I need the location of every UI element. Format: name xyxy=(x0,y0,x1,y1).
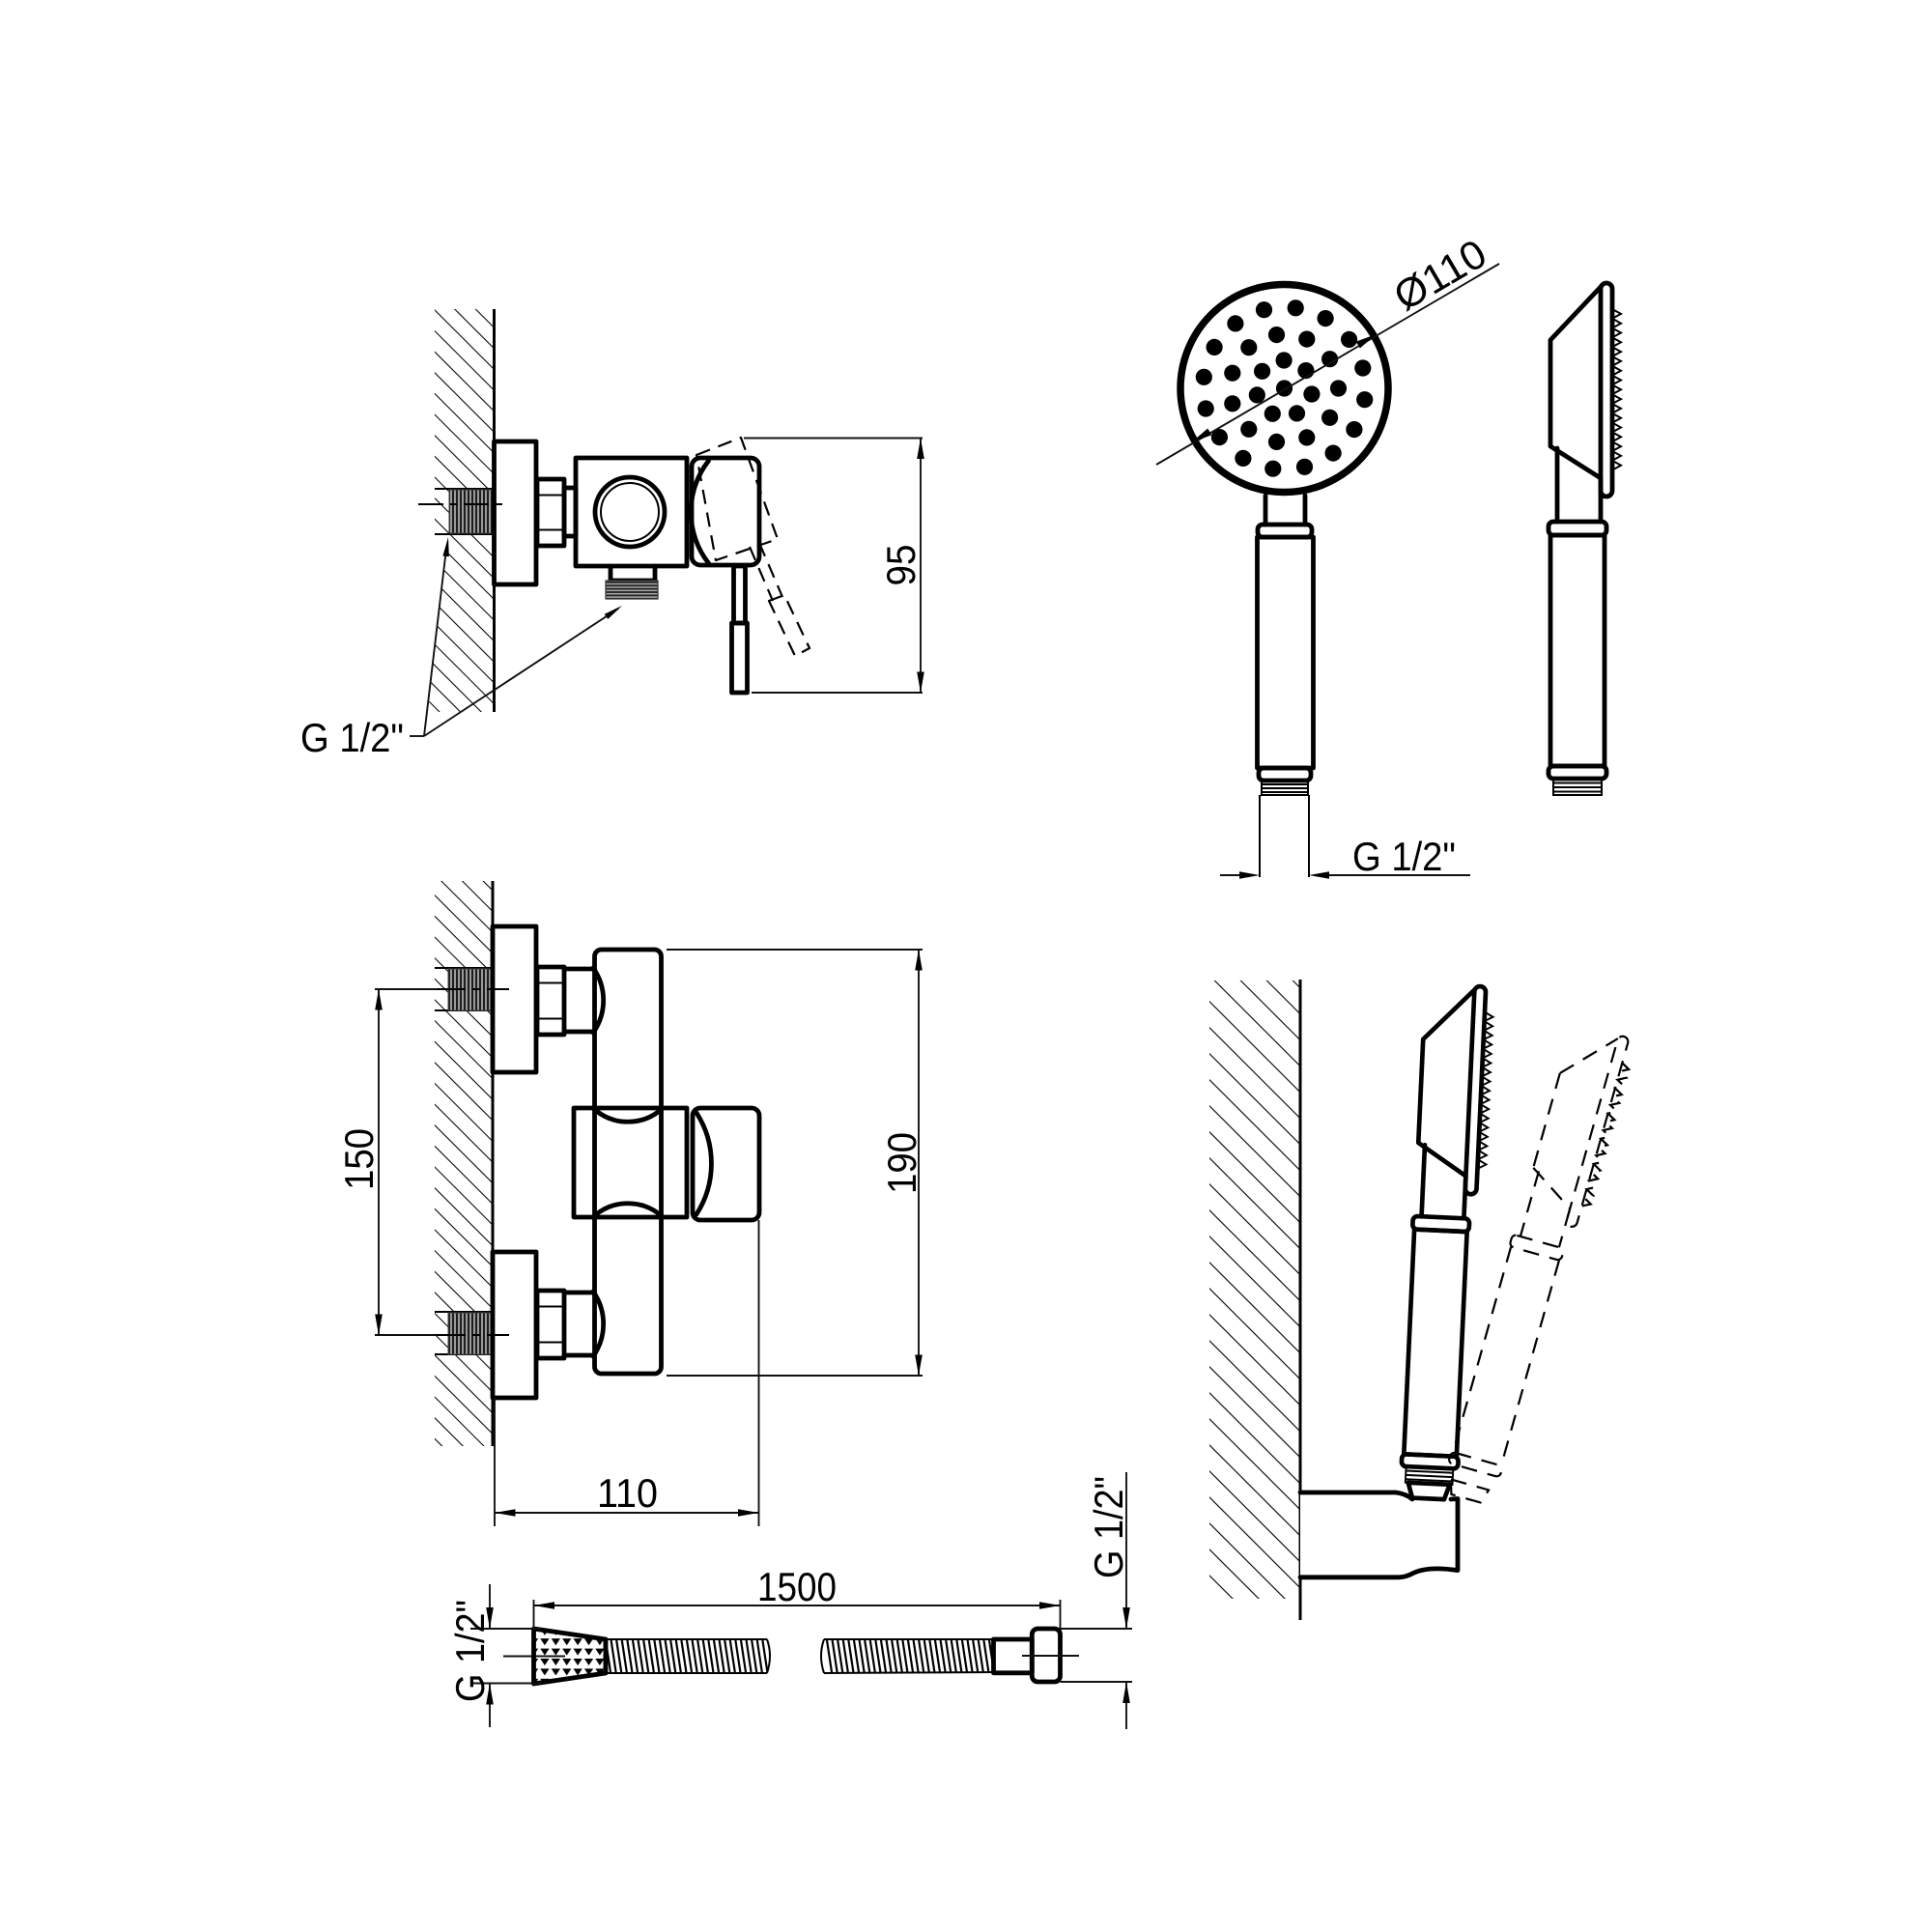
svg-text:95: 95 xyxy=(878,545,923,586)
svg-text:G 1/2": G 1/2" xyxy=(1086,1476,1131,1578)
svg-text:190: 190 xyxy=(879,1132,924,1194)
svg-text:G 1/2": G 1/2" xyxy=(300,715,404,760)
svg-text:G 1/2": G 1/2" xyxy=(1352,834,1456,879)
svg-text:150: 150 xyxy=(336,1128,382,1190)
svg-text:G 1/2": G 1/2" xyxy=(447,1600,493,1702)
svg-text:1500: 1500 xyxy=(757,1564,837,1609)
svg-text:110: 110 xyxy=(597,1470,658,1516)
